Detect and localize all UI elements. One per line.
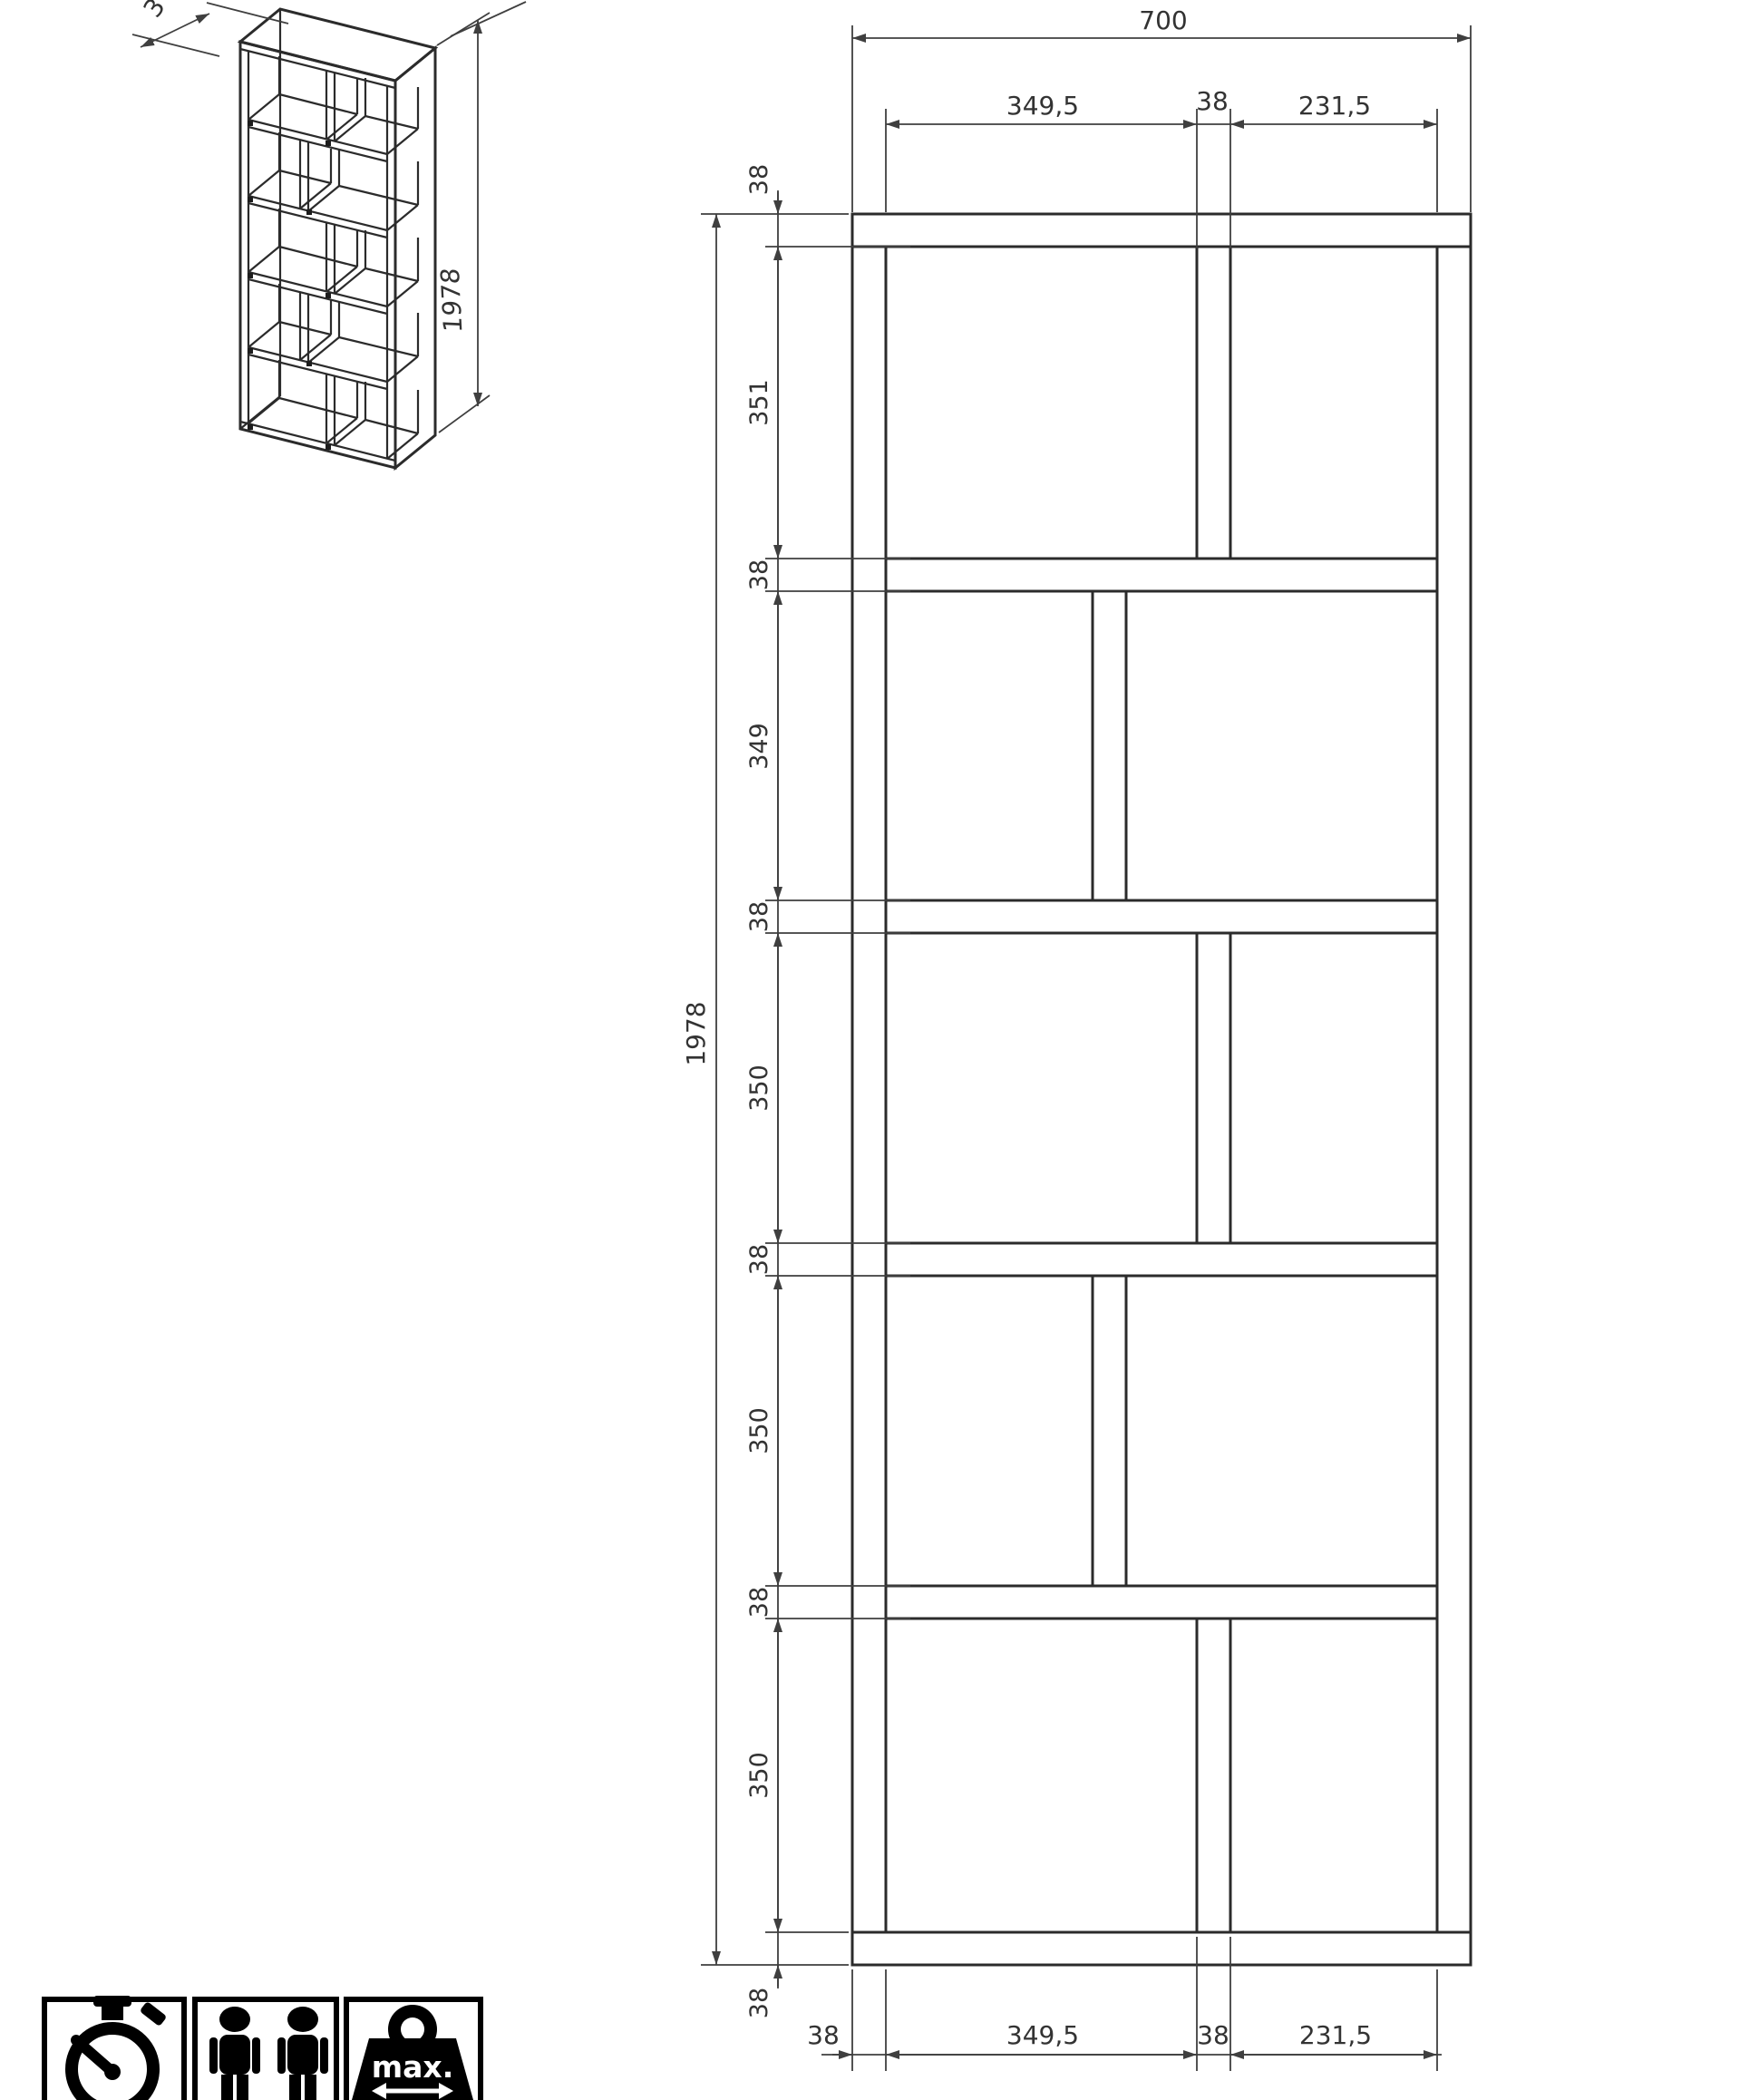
front-elevation bbox=[852, 214, 1471, 1965]
iso-height-label: 1978 bbox=[435, 267, 469, 334]
divider-row2 bbox=[1093, 591, 1126, 900]
drawing-svg: 1978 3 700 bbox=[0, 0, 1759, 2100]
left-chain-label-5: 38 bbox=[745, 901, 773, 932]
left-chain-label-6: 350 bbox=[745, 1065, 773, 1112]
shelf-4 bbox=[886, 1586, 1437, 1619]
iso-front-face bbox=[240, 42, 395, 468]
left-chain-label-4: 349 bbox=[745, 723, 773, 770]
bottom-chain-label-2: 349,5 bbox=[1006, 2020, 1079, 2050]
top-dimensions: 700 349,5 38 231,5 bbox=[852, 5, 1471, 248]
divider-row4 bbox=[1093, 1276, 1126, 1586]
top-panel bbox=[852, 214, 1471, 247]
left-chain-label-1: 38 bbox=[745, 164, 773, 195]
bottom-chain-label-4: 231,5 bbox=[1299, 2020, 1372, 2050]
shelf-3 bbox=[886, 1243, 1437, 1276]
assembly-time-badge bbox=[44, 1996, 184, 2100]
left-dimensions: 38 351 38 349 38 350 38 350 38 350 38 19… bbox=[681, 164, 910, 2018]
iso-depth-label-partial: 3 bbox=[138, 0, 171, 23]
top-chain-label-2: 38 bbox=[1196, 86, 1229, 116]
two-person-assembly-badge bbox=[195, 1999, 336, 2100]
max-weight-badge: max. bbox=[346, 1999, 481, 2100]
bottom-chain-label-1: 38 bbox=[807, 2020, 840, 2050]
top-chain-label-3: 231,5 bbox=[1298, 91, 1371, 121]
iso-front-grid bbox=[240, 49, 395, 461]
left-chain-label-9: 38 bbox=[745, 1587, 773, 1618]
iso-left-back-edge bbox=[240, 9, 280, 429]
iso-top-face bbox=[240, 9, 435, 81]
iso-right-face bbox=[395, 48, 435, 468]
overall-height-label: 1978 bbox=[681, 1001, 711, 1065]
left-chain-label-3: 38 bbox=[745, 559, 773, 590]
overall-width-label: 700 bbox=[1139, 5, 1187, 35]
divider-row1 bbox=[1197, 247, 1230, 559]
shelf-1 bbox=[886, 559, 1437, 591]
right-side-panel bbox=[1437, 247, 1471, 1932]
icon-badges: max. bbox=[44, 1996, 481, 2100]
left-chain-label-8: 350 bbox=[745, 1407, 773, 1454]
divider-row3 bbox=[1197, 933, 1230, 1243]
top-chain-label-1: 349,5 bbox=[1006, 91, 1079, 121]
max-weight-label: max. bbox=[372, 2049, 453, 2085]
left-chain-label-11: 38 bbox=[745, 1988, 773, 2018]
bottom-chain-label-3: 38 bbox=[1197, 2020, 1229, 2050]
bottom-panel bbox=[852, 1932, 1471, 1965]
left-side-panel bbox=[852, 247, 886, 1932]
isometric-view: 1978 3 bbox=[132, 0, 526, 468]
bottom-dimensions: 38 349,5 38 231,5 bbox=[807, 1937, 1442, 2071]
left-chain-label-10: 350 bbox=[745, 1752, 773, 1799]
shelf-2 bbox=[886, 900, 1437, 933]
left-chain-label-7: 38 bbox=[745, 1244, 773, 1275]
technical-drawing-page: 1978 3 700 bbox=[0, 0, 1759, 2100]
left-chain-label-2: 351 bbox=[745, 379, 773, 426]
divider-row5 bbox=[1197, 1619, 1230, 1932]
